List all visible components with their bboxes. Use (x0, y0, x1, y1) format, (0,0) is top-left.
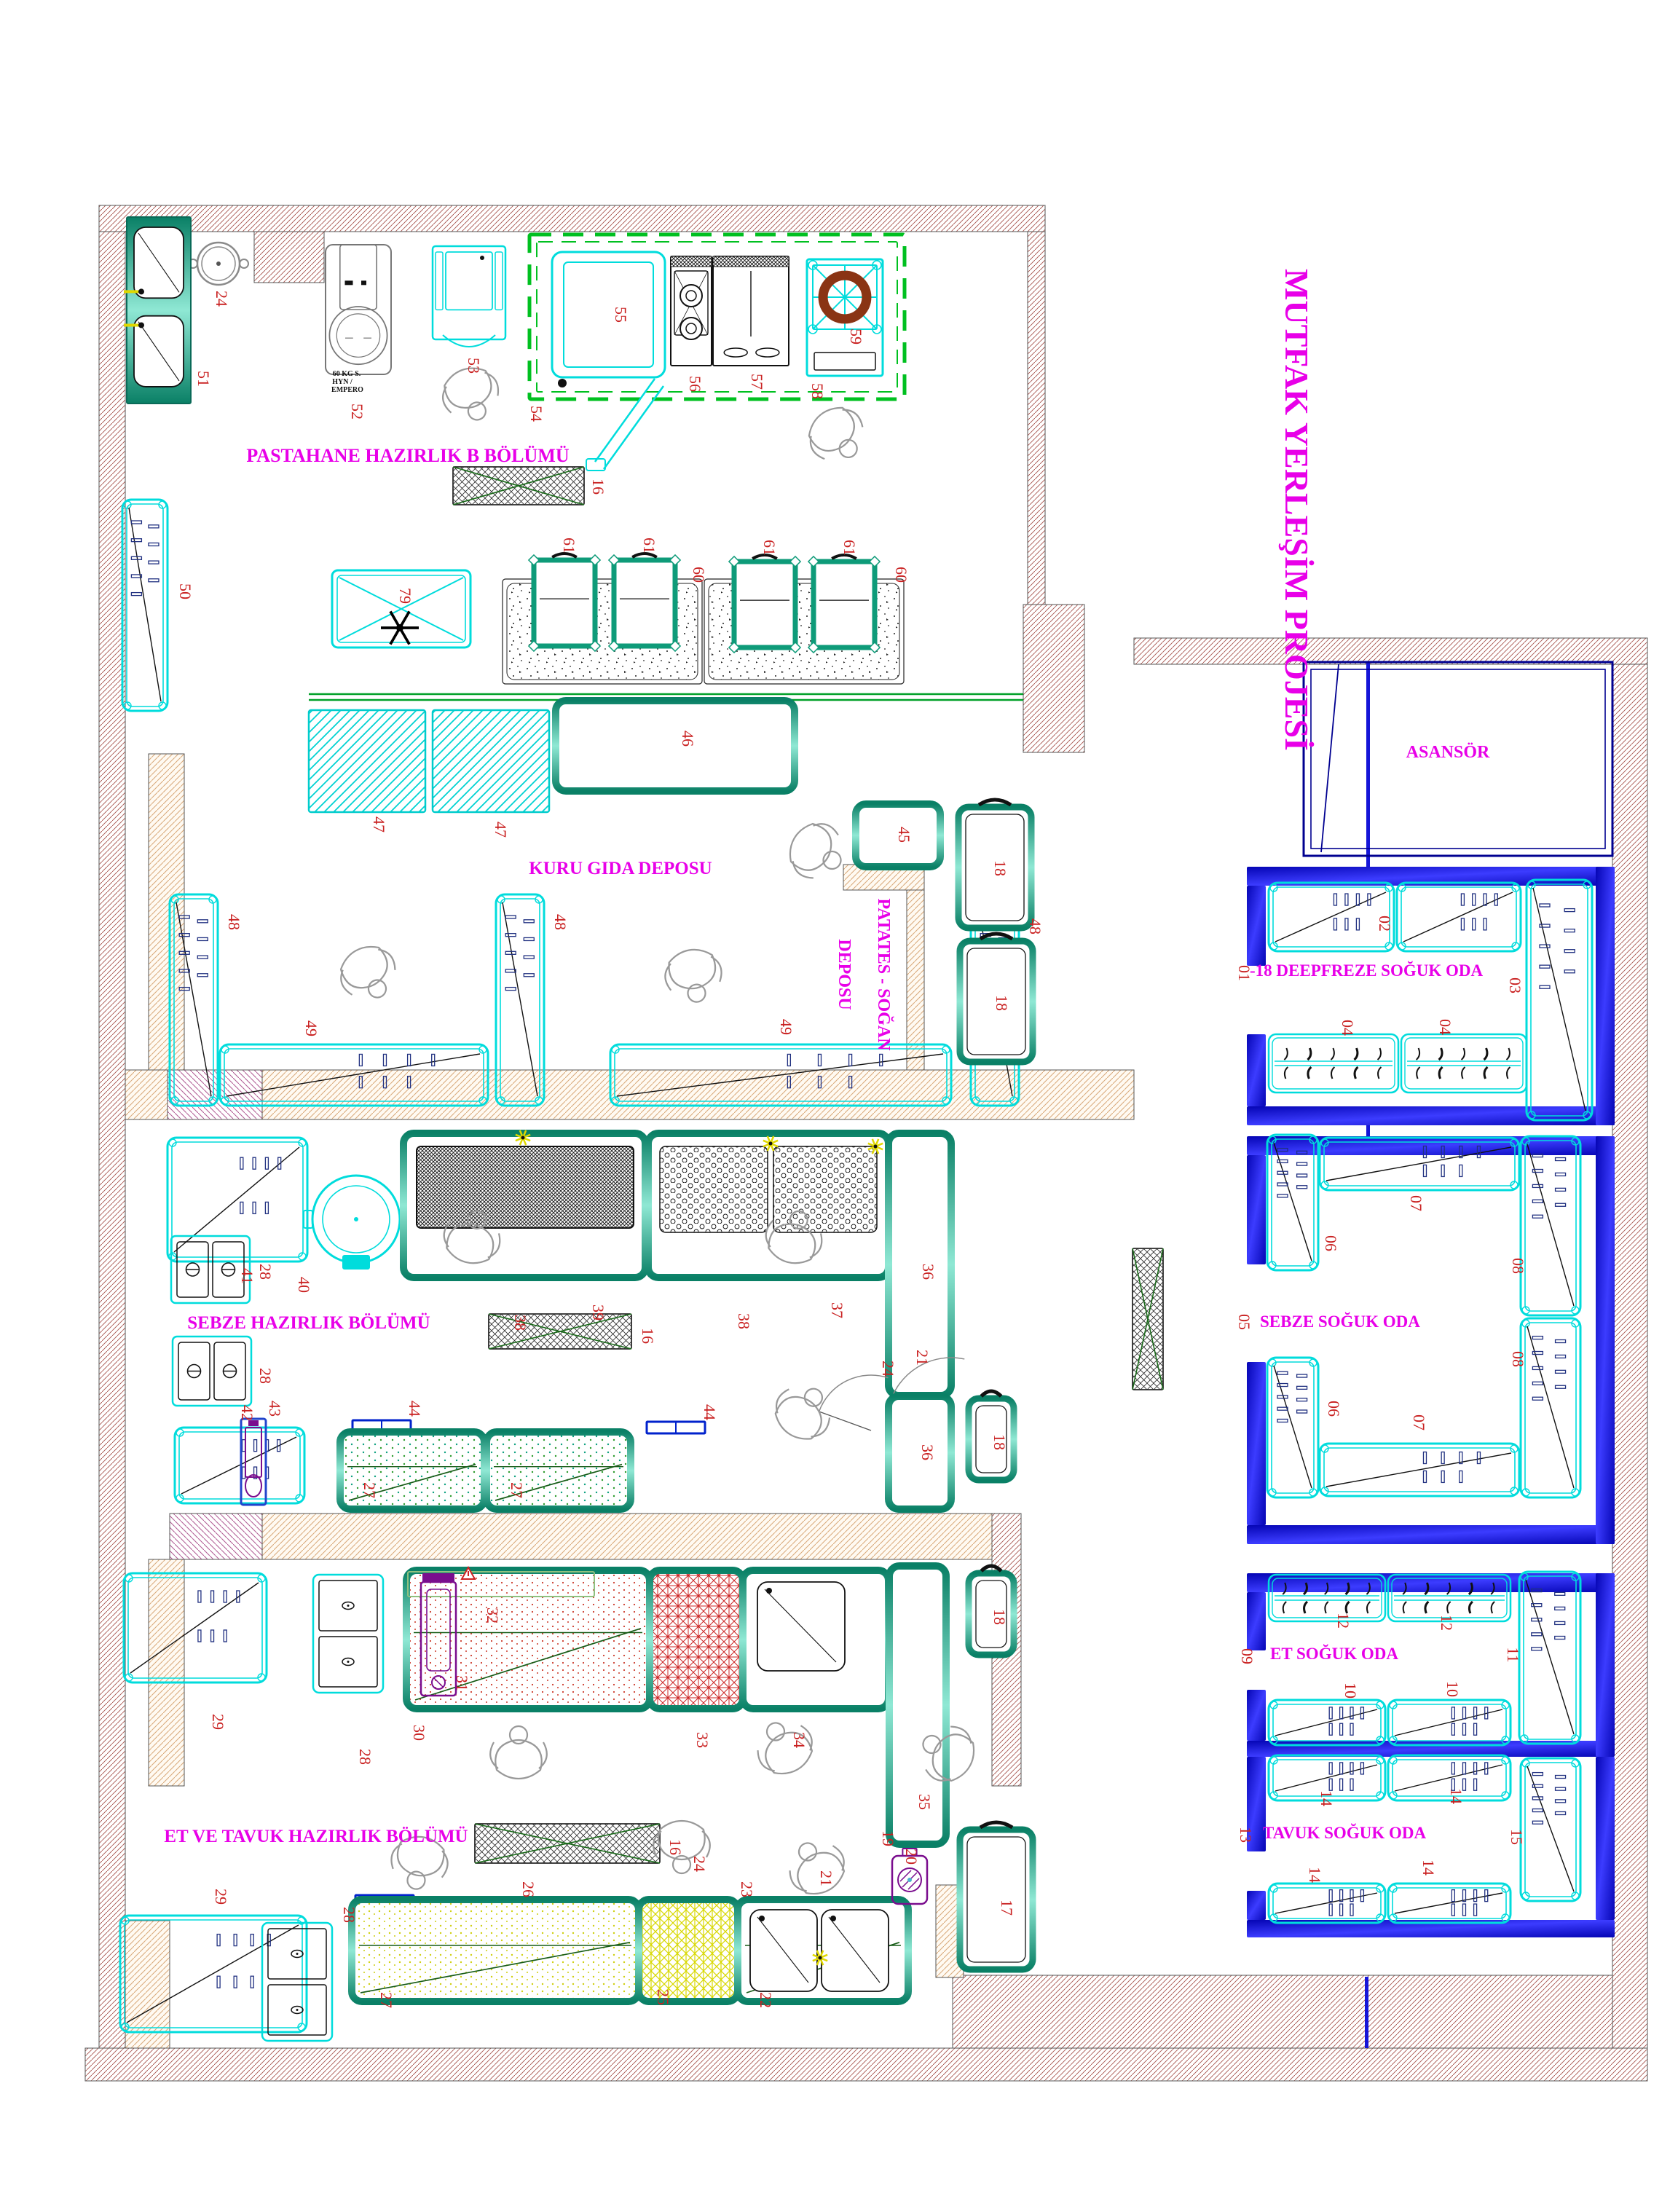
equipment-tag-12: 12 (1438, 1615, 1456, 1631)
basin-item-64 (757, 1582, 845, 1671)
equipment-tag-28: 28 (356, 1749, 374, 1765)
xtable-item-11 (332, 570, 470, 648)
equipment-tag-55: 55 (612, 307, 630, 323)
room-label-7: SEBZE SOĞUK ODA (1260, 1312, 1420, 1331)
basin-item-74 (822, 1910, 889, 1991)
equipment-tag-28: 28 (256, 1264, 275, 1280)
pot-item-5 (189, 243, 248, 285)
equipment-tag-28: 28 (256, 1368, 275, 1384)
shelf-item-98 (1269, 1884, 1385, 1923)
room-label-4: DEPOSU (835, 939, 854, 1009)
room-label-9: TAVUK SOĞUK ODA (1263, 1823, 1426, 1842)
shelf-item-94 (1388, 1700, 1510, 1745)
equipment-tag-49: 49 (302, 1020, 320, 1036)
shelf-item-92 (1519, 1572, 1580, 1744)
equipment-tag-12: 12 (1334, 1613, 1352, 1629)
room-label-8: ET SOĞUK ODA (1270, 1644, 1398, 1663)
shelf-item-97 (1521, 1758, 1580, 1901)
outer-wall (99, 205, 1045, 232)
equipment-tag-38: 38 (511, 1315, 529, 1331)
equipment-tag-14: 14 (1419, 1859, 1438, 1876)
equipment-tag-16: 16 (589, 479, 607, 495)
person-figure-8 (490, 1726, 547, 1779)
outer-wall (1023, 605, 1084, 752)
shelf-item-46 (175, 1428, 304, 1503)
outer-wall (1134, 638, 1647, 664)
equipment-tag-58: 58 (808, 383, 827, 399)
coldroom-wall (1247, 1891, 1266, 1920)
hooks-item-83 (1401, 1034, 1527, 1093)
hooks-item-82 (1269, 1034, 1398, 1093)
room-label-12: 60 KG S. (333, 370, 361, 378)
equipment-tag-18: 18 (993, 995, 1011, 1011)
coldroom-wall-line (1365, 1977, 1368, 2048)
equipment-tag-29: 29 (209, 1714, 227, 1730)
tray-item-17 (729, 555, 800, 653)
xshelf-item-78 (1133, 1248, 1163, 1390)
equipment-tag-39: 39 (589, 1304, 607, 1320)
equipment-tag-21: 21 (913, 1350, 931, 1366)
equipment-tag-19: 19 (879, 1830, 897, 1846)
xshelf-item-45 (489, 1314, 631, 1349)
shelf-item-10 (122, 500, 168, 711)
equipment-tag-03: 03 (1506, 977, 1524, 993)
equipment-tag-50: 50 (176, 583, 194, 599)
partition-wall (170, 1514, 992, 1559)
partition-wall (168, 1070, 262, 1119)
kitchen-layout-page: MUTFAK YERLEŞİM PROJESİPASTAHANE HAZIRLI… (0, 0, 1678, 2212)
outer-wall (99, 232, 125, 2048)
equipment-tag-23: 23 (738, 1881, 756, 1897)
coldroom-wall (1596, 1757, 1615, 1920)
rail-item-49 (647, 1422, 705, 1433)
equipment-tag-60: 60 (690, 567, 708, 583)
equipment-tag-40: 40 (295, 1277, 313, 1293)
partition-wall (149, 754, 184, 1070)
equipment-layer (120, 217, 1592, 2041)
equipment-tag-24: 24 (213, 291, 231, 307)
range-item-2 (671, 256, 712, 366)
equipment-tag-21: 21 (817, 1870, 835, 1886)
room-label-13: HYN / (332, 378, 352, 386)
outer-wall (85, 2048, 1647, 2081)
room-label-6: -18 DEEPFREZE SOĞUK ODA (1250, 961, 1484, 980)
equipment-tag-24: 24 (690, 1856, 709, 1872)
equipment-tag-60: 60 (892, 567, 910, 583)
coldroom-wall (1596, 867, 1615, 1125)
equipment-tag-05: 05 (1235, 1314, 1253, 1330)
oven-item-1 (552, 252, 665, 471)
room-label-1: PASTAHANE HAZIRLIK B BÖLÜMÜ (246, 445, 569, 466)
room-label-11: ET VE TAVUK HAZIRLIK BÖLÜMÜ (164, 1827, 468, 1846)
sinkdbl-item-8 (124, 217, 191, 404)
equipment-tag-48: 48 (225, 914, 243, 930)
equipment-tag-27: 27 (508, 1482, 526, 1498)
outer-wall (953, 1975, 1612, 2048)
equipment-tag-06: 06 (1325, 1401, 1343, 1417)
coldroom-wall (1247, 1690, 1266, 1741)
coldroom-wall (1247, 886, 1266, 966)
kitchen-floor-plan: MUTFAK YERLEŞİM PROJESİPASTAHANE HAZIRLI… (0, 0, 1678, 2212)
shelf-item-87 (1521, 1318, 1580, 1497)
equipment-tag-30: 30 (410, 1725, 428, 1741)
drawers-item-57 (313, 1575, 383, 1693)
partition-wall (149, 1559, 184, 1786)
equipment-tag-22: 22 (757, 1992, 775, 2008)
xshelf-item-66 (475, 1824, 660, 1863)
equipment-tag-59: 59 (847, 328, 865, 345)
equipment-tag-07: 07 (1407, 1195, 1425, 1211)
tray-item-16 (609, 554, 680, 651)
cart-item-77 (960, 1822, 1033, 1969)
equipment-tag-02: 02 (1376, 916, 1394, 932)
equipment-tag-79: 79 (396, 588, 414, 604)
equipment-tag-49: 49 (777, 1019, 795, 1035)
coldroom-wall (1247, 1525, 1615, 1544)
perf-item-37 (773, 1146, 877, 1232)
equipment-tag-24: 24 (879, 1361, 897, 1377)
xshelf-item-9 (453, 467, 584, 505)
equipment-tag-48: 48 (1026, 918, 1044, 934)
equipment-tag-14: 14 (1317, 1790, 1336, 1806)
shelf-item-93 (1269, 1700, 1385, 1745)
line-item-100 (1321, 664, 1339, 852)
equipment-tag-44: 44 (406, 1401, 424, 1417)
coldroom-wall (1247, 1362, 1266, 1525)
coldroom-wall-line (1366, 1125, 1370, 1136)
equipment-tag-04: 04 (1436, 1019, 1454, 1035)
equipment-tag-45: 45 (895, 827, 913, 843)
equipment-tag-36: 36 (918, 1444, 937, 1460)
drawers-item-68 (262, 1923, 332, 2041)
equipment-tag-53: 53 (465, 358, 483, 374)
equipment-tag-47: 47 (370, 816, 388, 833)
equipment-tag-10: 10 (1443, 1681, 1462, 1697)
equipment-tag-34: 34 (790, 1732, 808, 1748)
equipment-tag-37: 37 (828, 1302, 846, 1318)
counter-item-71 (639, 1900, 738, 2002)
equipment-tag-08: 08 (1509, 1258, 1527, 1274)
person-figure-9 (747, 1710, 822, 1784)
room-label-10: SEBZE HAZIRLIK BÖLÜMÜ (187, 1313, 430, 1333)
equipment-tag-46: 46 (679, 731, 697, 747)
equipment-tag-56: 56 (686, 376, 704, 392)
equipment-tag-43: 43 (266, 1401, 284, 1417)
equipment-tag-18: 18 (991, 860, 1009, 876)
equipment-tag-48: 48 (551, 914, 570, 930)
person-figure-1 (798, 397, 875, 473)
partition-wall (170, 1514, 262, 1559)
partition-wall (125, 1921, 170, 2048)
equipment-tag-61: 61 (840, 540, 859, 556)
equipment-tag-29: 29 (212, 1889, 230, 1905)
equipment-tag-36: 36 (919, 1264, 937, 1280)
outer-wall (254, 232, 324, 283)
equipment-tag-28: 28 (340, 1907, 358, 1923)
shelf-item-89 (1320, 1444, 1519, 1496)
pallet-item-21 (433, 710, 549, 812)
equipment-tag-11: 11 (1504, 1647, 1522, 1662)
equipment-tag-35: 35 (915, 1794, 934, 1810)
room-label-5: ASANSÖR (1406, 743, 1490, 762)
equipment-tag-33: 33 (693, 1732, 712, 1748)
counter-item-62 (650, 1570, 743, 1709)
perf-item-36 (660, 1146, 768, 1232)
equipment-tag-20: 20 (902, 1849, 921, 1865)
equipment-tag-25: 25 (654, 1989, 672, 2005)
pallet-item-20 (309, 710, 425, 812)
shelf-item-86 (1521, 1136, 1580, 1315)
person-figure-11 (779, 1830, 854, 1904)
circ40-item-32 (304, 1176, 409, 1269)
equipment-tag-54: 54 (527, 406, 545, 422)
basin-item-73 (750, 1910, 817, 1991)
room-label-14: EMPERO (331, 386, 363, 394)
equipment-tag-26: 26 (519, 1881, 537, 1897)
shelf-item-80 (1397, 883, 1521, 951)
room-label-3: PATATES - SOĞAN (874, 899, 894, 1052)
shelf-item-56 (124, 1573, 267, 1682)
equipment-tag-01: 01 (1235, 965, 1253, 981)
coldroom-wall (1247, 1592, 1266, 1650)
coldroom-wall (1596, 1573, 1615, 1757)
equipment-tag-13: 13 (1237, 1827, 1255, 1843)
mesh-item-34 (417, 1146, 634, 1228)
coldroom-wall (1247, 1034, 1266, 1106)
equipment-tag-61: 61 (560, 538, 578, 554)
equipment-tag-07: 07 (1410, 1414, 1428, 1430)
shelf-item-99 (1388, 1884, 1510, 1923)
shelf-item-31 (168, 1138, 307, 1262)
equipment-tag-18: 18 (990, 1434, 1009, 1450)
equipment-tag-38: 38 (735, 1313, 753, 1329)
equipment-tag-41: 41 (238, 1268, 256, 1284)
equipment-tag-51: 51 (194, 371, 213, 387)
equipment-tag-32: 32 (484, 1607, 502, 1623)
tray-item-15 (529, 554, 600, 651)
shelf-item-79 (1269, 883, 1394, 951)
equipment-tag-42: 42 (238, 1405, 256, 1421)
shelf-item-88 (1267, 1358, 1318, 1497)
equipment-tag-61: 61 (640, 538, 658, 554)
equipment-tag-16: 16 (639, 1328, 657, 1344)
mixer-item-6 (326, 245, 391, 374)
equipment-tag-14: 14 (1447, 1788, 1465, 1804)
equipment-tag-44: 44 (701, 1404, 719, 1420)
equipment-tag-09: 09 (1238, 1648, 1256, 1664)
equipment-tag-08: 08 (1509, 1351, 1527, 1367)
person-figure-3 (661, 945, 726, 1007)
counter-item-22 (556, 701, 795, 791)
equipment-tag-06: 06 (1322, 1235, 1340, 1251)
person-figure-7 (765, 1374, 842, 1449)
coldroom-wall-line (1366, 662, 1370, 867)
room-label-0: MUTFAK YERLEŞİM PROJESİ (1278, 269, 1315, 751)
coldroom-wall (1596, 1136, 1615, 1544)
equipment-tag-18: 18 (990, 1609, 1009, 1625)
coldroom-wall (1247, 1155, 1266, 1264)
equipment-tag-57: 57 (748, 374, 766, 390)
equipment-tag-31: 31 (453, 1675, 471, 1691)
equipment-tag-14: 14 (1306, 1867, 1324, 1883)
tray-item-18 (808, 555, 880, 653)
outer-wall (1028, 232, 1045, 605)
equipment-tag-17: 17 (998, 1900, 1016, 1916)
equipment-tag-04: 04 (1339, 1020, 1357, 1036)
flat-item-3 (713, 256, 789, 366)
room-label-2: KURU GIDA DEPOSU (529, 859, 712, 878)
equipment-tag-61: 61 (760, 540, 779, 556)
m53-item-7 (433, 246, 505, 347)
person-figure-4 (780, 814, 854, 889)
shelf-item-81 (1527, 880, 1592, 1120)
cabinet-item-44 (173, 1337, 251, 1406)
equipment-tag-47: 47 (492, 822, 510, 838)
equipment-tag-52: 52 (348, 404, 366, 420)
equipment-tag-10: 10 (1342, 1682, 1360, 1699)
equipment-tag-27: 27 (377, 1992, 395, 2008)
counter-item-70 (352, 1900, 639, 2002)
wok-item-4 (807, 259, 883, 376)
outer-wall (1612, 664, 1647, 2048)
person-figure-2 (331, 937, 406, 1010)
equipment-tag-15: 15 (1508, 1829, 1526, 1845)
equipment-tag-16: 16 (666, 1839, 685, 1855)
cabinet-item-43 (171, 1236, 250, 1303)
equipment-tag-27: 27 (361, 1482, 379, 1498)
